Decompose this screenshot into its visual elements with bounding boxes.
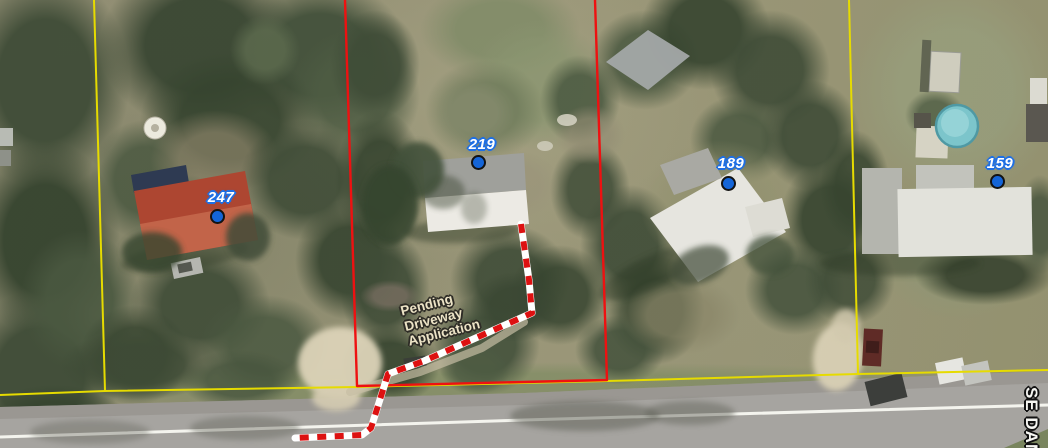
address-point-189[interactable] — [721, 176, 736, 191]
pool-water-highlight — [941, 109, 969, 137]
shed — [929, 51, 961, 93]
house-159-top-section — [916, 165, 974, 189]
roof-tree-shadow — [461, 192, 487, 224]
parcel-line-yellow-left — [94, 0, 105, 391]
tree-canopy — [746, 235, 794, 275]
address-point-159[interactable] — [990, 174, 1005, 189]
pool-deck-dark — [914, 113, 931, 128]
road-tree-shadow — [510, 401, 660, 431]
left-structure — [0, 150, 11, 166]
road-tree-shadow — [190, 416, 300, 440]
tree-canopy — [122, 232, 182, 272]
shed-roof-189 — [606, 30, 690, 90]
debris-pile — [557, 114, 577, 126]
map-overlay — [0, 0, 1048, 448]
street-name-label: SE DAN — [1021, 387, 1041, 448]
structure-white — [1030, 78, 1047, 104]
address-label-247[interactable]: 247 — [208, 189, 235, 206]
structure-dark — [1026, 104, 1048, 142]
address-label-189[interactable]: 189 — [718, 155, 745, 172]
tree-canopy — [226, 213, 270, 261]
house-159-wing — [862, 168, 902, 254]
left-structure — [0, 128, 13, 146]
address-point-247[interactable] — [210, 209, 225, 224]
address-point-219[interactable] — [471, 155, 486, 170]
tree-canopy — [362, 165, 418, 245]
road-tree-shadow — [645, 401, 735, 425]
address-label-219[interactable]: 219 — [469, 136, 496, 153]
house-159-roof — [897, 187, 1032, 257]
map-viewport[interactable]: 247219189159 Pending Driveway Applicatio… — [0, 0, 1048, 448]
address-label-159[interactable]: 159 — [987, 155, 1014, 172]
vehicle-truck-cab — [866, 341, 880, 354]
satellite-dish-center — [151, 124, 159, 132]
road-tree-shadow — [30, 420, 150, 444]
debris-pile — [537, 141, 553, 151]
